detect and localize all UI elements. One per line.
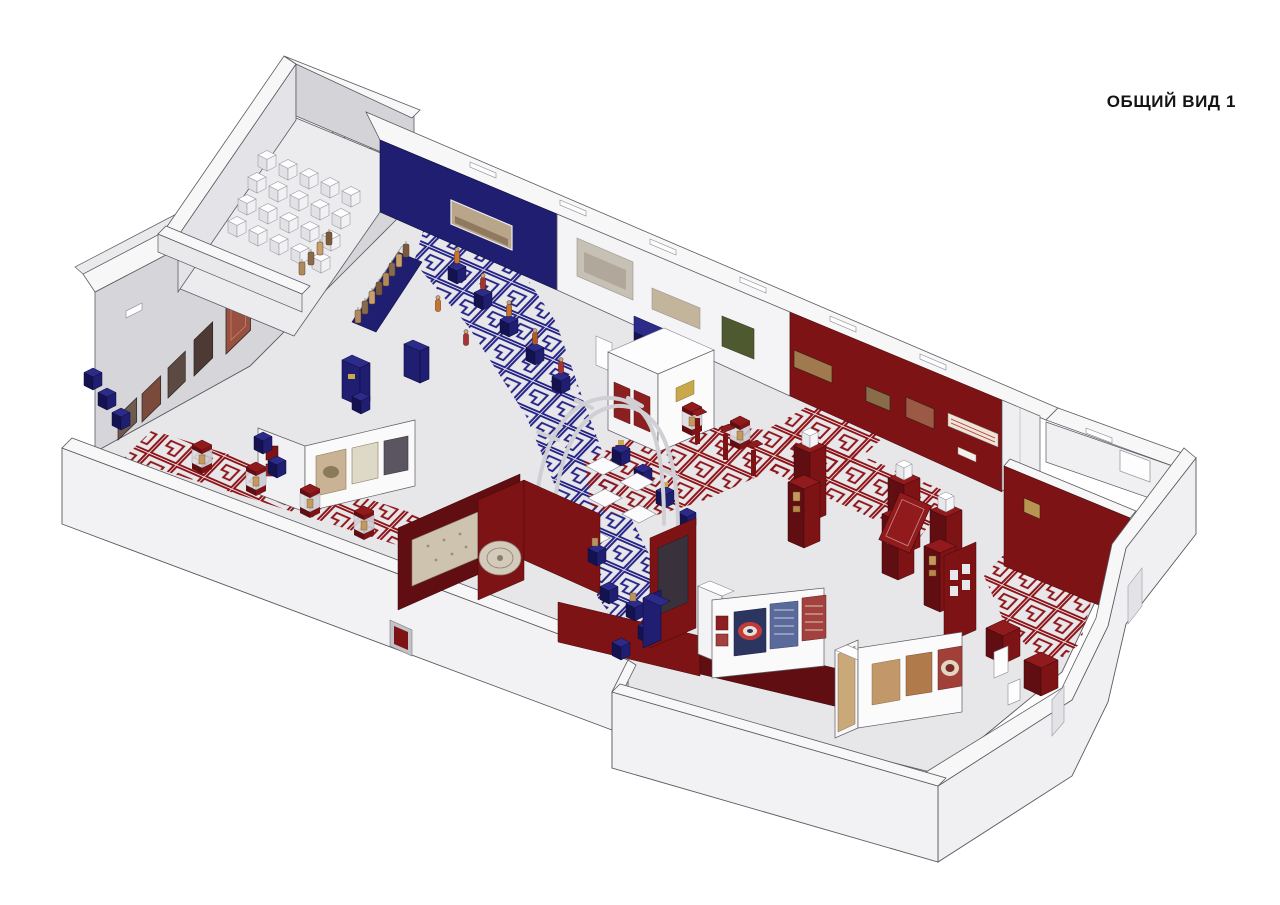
carpet-partition-a [698,581,826,678]
axonometric-exhibition-render [0,0,1280,905]
